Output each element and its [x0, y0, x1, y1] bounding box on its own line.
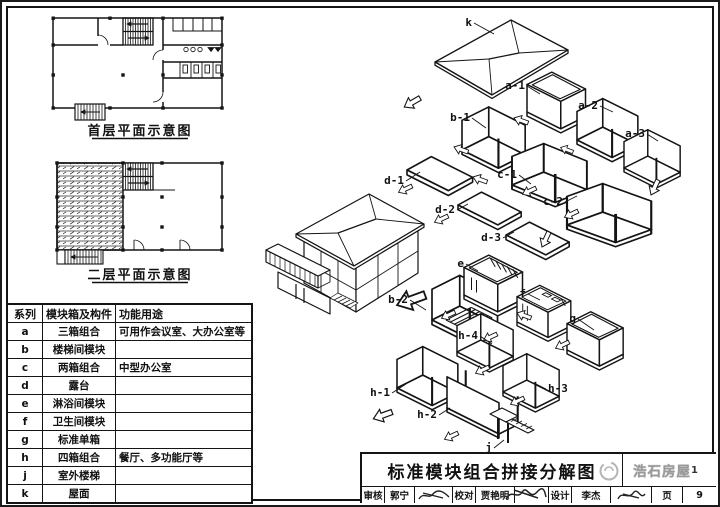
- header-function: 功能用途: [116, 304, 253, 323]
- watermark-cell: 浩石房屋 1: [623, 454, 716, 486]
- designer-signature: [611, 487, 652, 503]
- field-label-designer: 设计: [549, 487, 572, 503]
- label-c1: c-1: [497, 168, 517, 181]
- table-row: h四箱组合餐厅、多功能厅等: [7, 449, 252, 467]
- label-d1: d-1: [384, 174, 404, 187]
- field-value-reviewer: 郭宁: [385, 487, 415, 503]
- drawing-sheet: 首层平面示意图: [0, 0, 720, 507]
- label-g: g: [569, 312, 576, 325]
- label-d2: d-2: [435, 203, 455, 216]
- reviewer-signature: [415, 487, 453, 503]
- title-block: 标准模块组合拼接分解图 浩石房屋 1 审核 郭宁 校对 贾艳明: [360, 452, 716, 503]
- table-row: c两箱组合中型办公室: [7, 359, 252, 377]
- label-c2: c-2: [543, 195, 563, 208]
- table-row: d露台: [7, 377, 252, 395]
- label-h1: h-1: [370, 386, 390, 399]
- table-row: e淋浴间模块: [7, 395, 252, 413]
- field-label-checker: 校对: [453, 487, 476, 503]
- label-d3: d-3: [481, 231, 501, 244]
- label-h2: h-2: [417, 408, 437, 421]
- drawing-title: 标准模块组合拼接分解图: [362, 454, 623, 486]
- label-b2: b-2: [388, 293, 408, 306]
- header-series: 系列: [7, 304, 43, 323]
- module-table: 系列 模块箱及构件 功能用途 a三箱组合可用作会议室、大办公室等 b楼梯间模块 …: [6, 303, 253, 504]
- table-header-row: 系列 模块箱及构件 功能用途: [7, 304, 252, 323]
- label-k: k: [465, 16, 472, 29]
- table-row: b楼梯间模块: [7, 341, 252, 359]
- module-d3: [506, 222, 569, 259]
- table-row: g标准单箱: [7, 431, 252, 449]
- table-row: k屋面: [7, 485, 252, 504]
- page-label: 页: [652, 487, 683, 503]
- label-h4: h-4: [458, 329, 478, 342]
- label-h3: h-3: [548, 382, 568, 395]
- table-row: f卫生间模块: [7, 413, 252, 431]
- label-a2: a-2: [578, 99, 598, 112]
- module-d1: [407, 157, 473, 196]
- watermark-logo-icon: [597, 460, 621, 486]
- page-number: 9: [683, 487, 716, 503]
- module-d2: [458, 192, 521, 229]
- label-b1: b-1: [450, 111, 470, 124]
- label-f: f: [519, 287, 526, 300]
- table-row: a三箱组合可用作会议室、大办公室等: [7, 323, 252, 341]
- checker-signature: [515, 487, 549, 503]
- label-a1: a-1: [505, 79, 525, 92]
- watermark-text: 浩石房屋: [623, 460, 691, 480]
- label-a3: a-3: [625, 127, 645, 140]
- field-value-designer: 李杰: [572, 487, 611, 503]
- label-e: e: [457, 257, 464, 270]
- watermark-suffix: 1: [691, 465, 698, 476]
- field-label-reviewer: 审核: [362, 487, 385, 503]
- table-row: j室外楼梯: [7, 467, 252, 485]
- module-c2: [567, 184, 651, 247]
- module-h4: [457, 314, 513, 372]
- header-module: 模块箱及构件: [43, 304, 116, 323]
